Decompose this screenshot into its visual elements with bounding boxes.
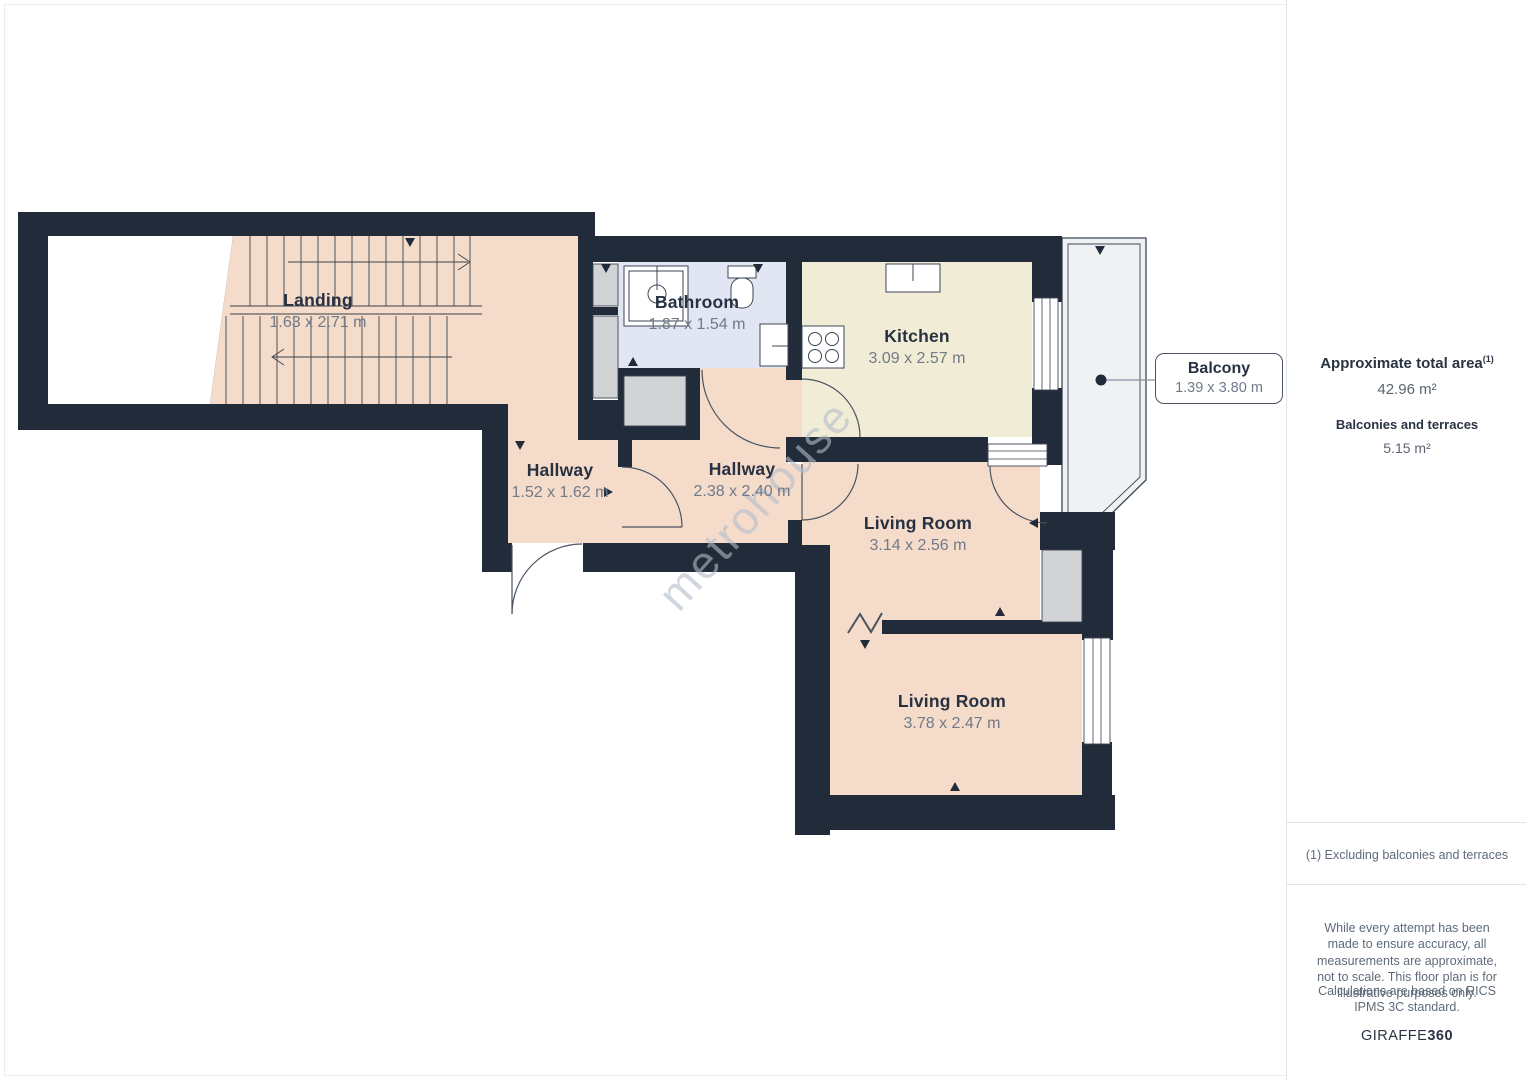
room-label-hallway-2: Hallway 2.38 x 2.40 m bbox=[622, 459, 862, 501]
balcony-callout: Balcony 1.39 x 3.80 m bbox=[1155, 353, 1283, 404]
cupboard bbox=[624, 376, 686, 426]
toilet bbox=[728, 266, 756, 278]
brand-logo: GIRAFFE360 bbox=[1297, 1028, 1517, 1044]
living-room-window bbox=[1084, 638, 1110, 744]
serving-hatch bbox=[988, 444, 1047, 466]
sidebar-divider bbox=[1287, 884, 1526, 885]
kitchen-window bbox=[1034, 298, 1058, 390]
footnote-marker: (1) bbox=[1483, 354, 1494, 364]
closet bbox=[1042, 550, 1082, 622]
room-label-living-room-1: Living Room 3.14 x 2.56 m bbox=[798, 513, 1038, 555]
room-label-landing: Landing 1.63 x 2.71 m bbox=[198, 290, 438, 332]
standards-text: Calculations are based on RICS IPMS 3C s… bbox=[1302, 983, 1512, 1016]
sidebar-divider bbox=[1287, 822, 1526, 823]
room-label-kitchen: Kitchen 3.09 x 2.57 m bbox=[797, 326, 1037, 368]
total-area-value: 42.96 m² bbox=[1297, 381, 1517, 398]
room-label-bathroom: Bathroom 1.87 x 1.54 m bbox=[577, 292, 817, 334]
total-area-label: Approximate total area(1) bbox=[1297, 354, 1517, 372]
footnote-text: (1) Excluding balconies and terraces bbox=[1297, 847, 1517, 863]
info-sidebar: Approximate total area(1) 42.96 m² Balco… bbox=[1286, 0, 1526, 1080]
balconies-label: Balconies and terraces bbox=[1297, 417, 1517, 432]
leader-dot bbox=[1096, 375, 1107, 386]
balconies-value: 5.15 m² bbox=[1297, 440, 1517, 456]
room-label-living-room-2: Living Room 3.78 x 2.47 m bbox=[832, 691, 1072, 733]
